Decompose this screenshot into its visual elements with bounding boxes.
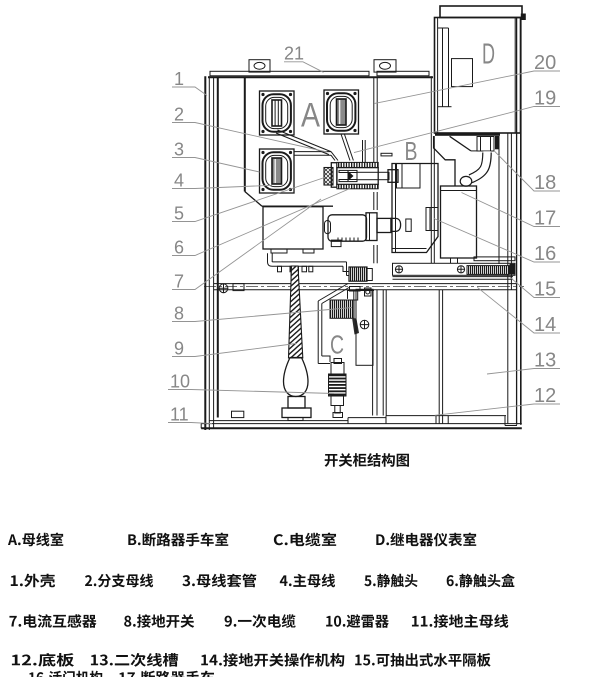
svg-text:1: 1 xyxy=(174,69,184,89)
svg-text:10: 10 xyxy=(170,372,190,392)
svg-text:5: 5 xyxy=(174,204,184,224)
svg-text:B: B xyxy=(405,136,418,166)
svg-text:21: 21 xyxy=(284,44,304,64)
svg-text:A: A xyxy=(301,97,320,135)
svg-text:D: D xyxy=(482,39,495,71)
svg-text:3: 3 xyxy=(174,140,184,160)
svg-text:11: 11 xyxy=(170,405,189,425)
svg-text:2: 2 xyxy=(174,105,184,125)
svg-text:7: 7 xyxy=(174,272,184,292)
svg-text:C: C xyxy=(330,330,344,360)
svg-text:9: 9 xyxy=(174,339,184,359)
svg-text:8: 8 xyxy=(174,304,184,324)
svg-text:6: 6 xyxy=(174,238,184,258)
svg-text:4: 4 xyxy=(174,171,184,191)
